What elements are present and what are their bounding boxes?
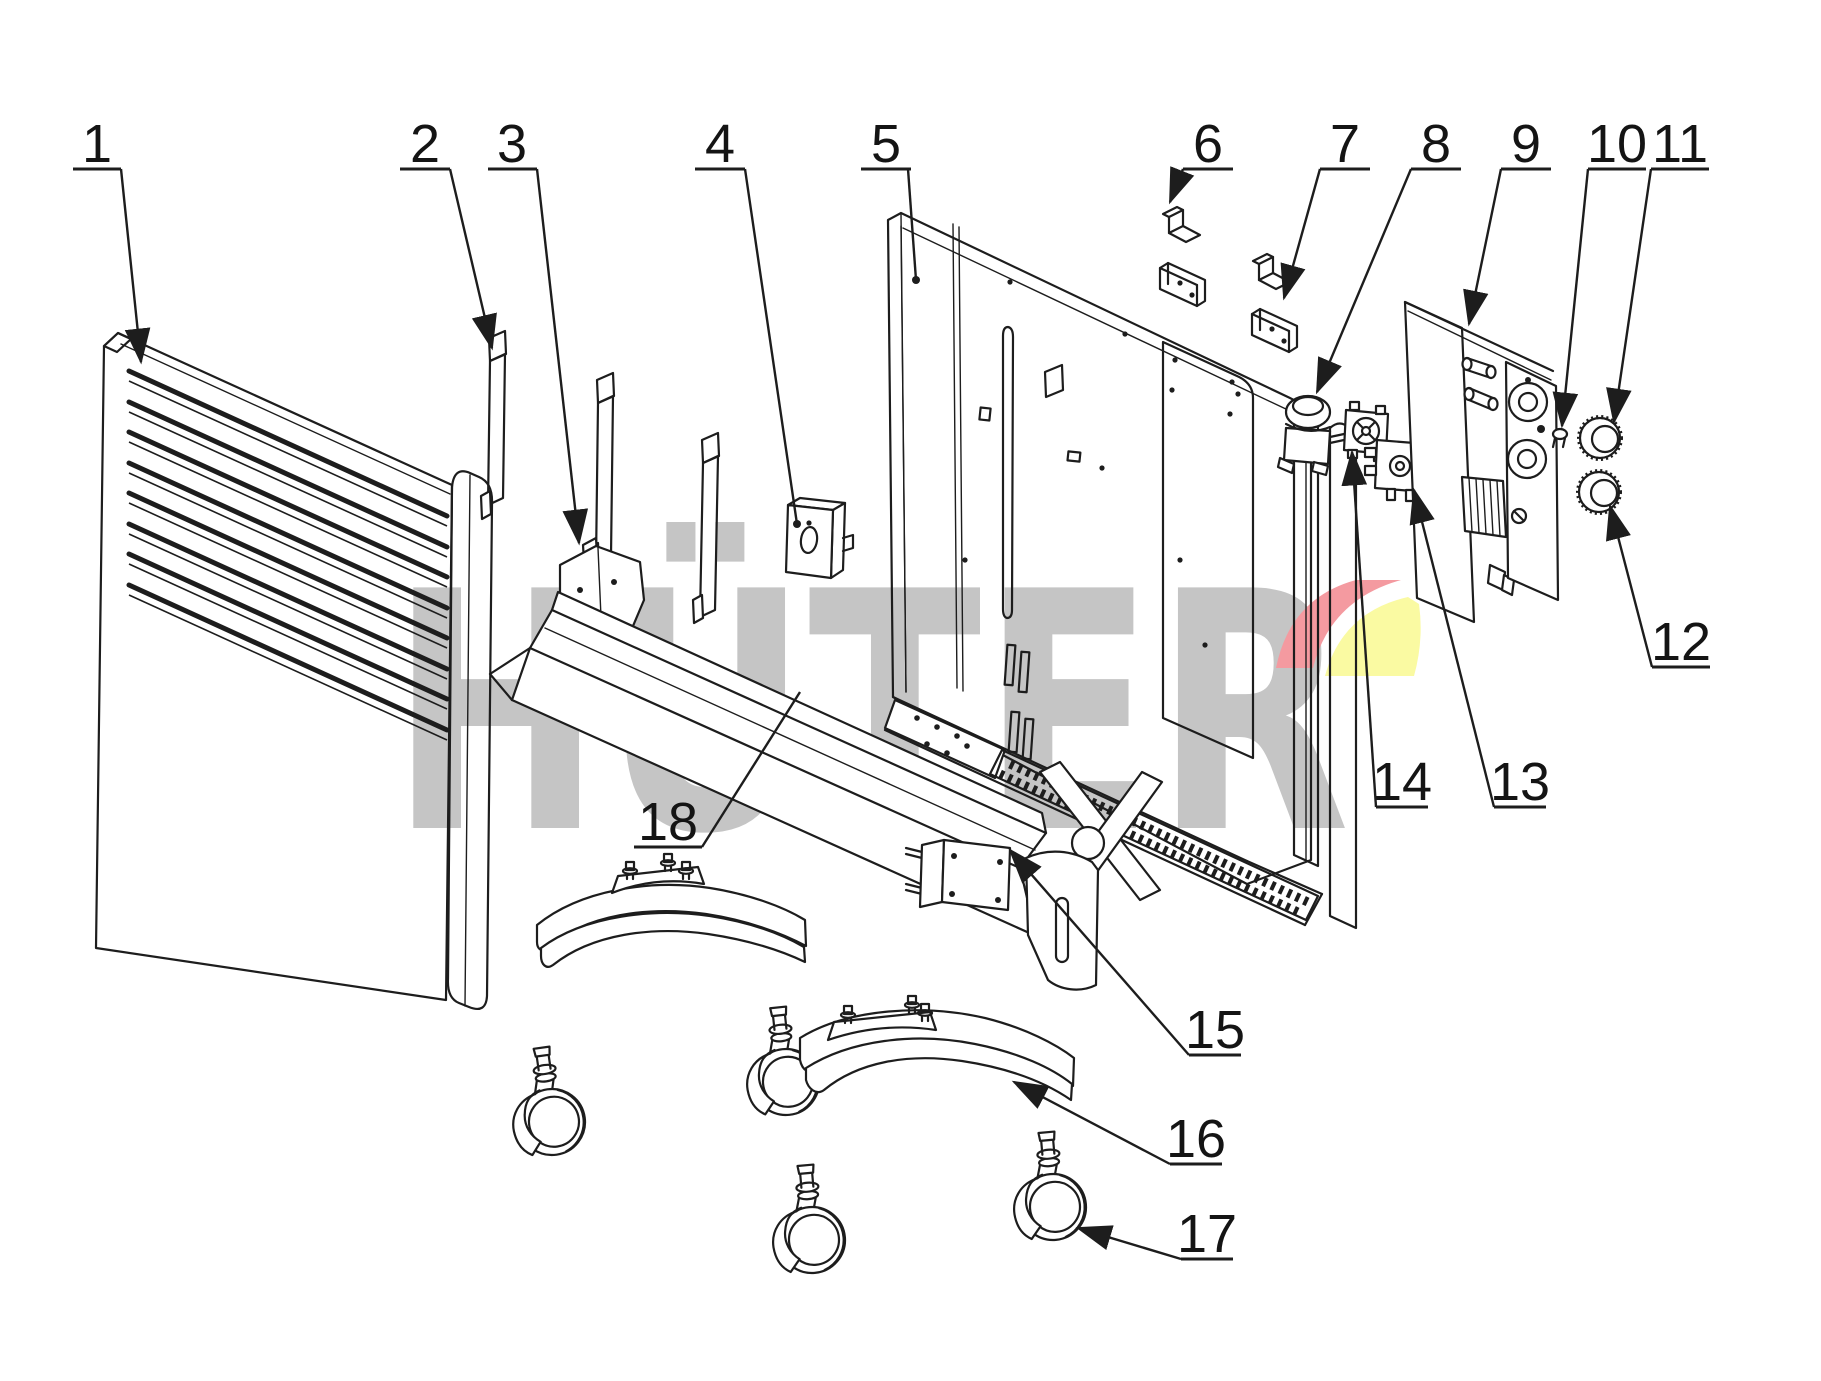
- part-number: 12: [1651, 612, 1711, 672]
- callout-1: 1: [73, 114, 141, 362]
- callout-17: 17: [1078, 1204, 1237, 1264]
- part-number: 17: [1177, 1204, 1237, 1264]
- callout-3: 3: [488, 114, 579, 543]
- callout-9: 9: [1469, 114, 1551, 324]
- part-foot-rear: [800, 996, 1074, 1100]
- part-number: 7: [1330, 114, 1360, 174]
- part-number: 6: [1193, 114, 1223, 174]
- part-control-bracket: [1405, 302, 1558, 622]
- part-knob-lower: [1578, 471, 1620, 513]
- exploded-diagram: HÜTER: [0, 0, 1821, 1381]
- part-number: 15: [1185, 1000, 1245, 1060]
- part-number: 11: [1652, 114, 1708, 174]
- part-wall-brackets-lower: [1252, 254, 1297, 352]
- part-number: 5: [871, 114, 901, 174]
- callout-4: 4: [695, 114, 801, 528]
- part-number: 18: [638, 792, 698, 852]
- callout-7: 7: [1284, 114, 1370, 298]
- callout-12: 12: [1610, 506, 1711, 672]
- callout-2: 2: [400, 114, 492, 348]
- part-number: 3: [497, 114, 527, 174]
- part-number: 9: [1511, 114, 1541, 174]
- part-motor-unit: [1278, 396, 1344, 475]
- part-wall-brackets-upper: [1160, 207, 1205, 306]
- part-number: 13: [1490, 752, 1550, 812]
- part-number: 10: [1587, 114, 1647, 174]
- callout-5: 5: [861, 114, 920, 284]
- part-number: 4: [705, 114, 735, 174]
- part-number: 14: [1372, 752, 1432, 812]
- part-number: 8: [1421, 114, 1451, 174]
- part-number: 2: [410, 114, 440, 174]
- part-number: 1: [82, 114, 112, 174]
- callout-6: 6: [1170, 114, 1233, 202]
- diagram-page: HÜTER: [0, 0, 1821, 1381]
- part-knob-upper: [1579, 417, 1621, 459]
- part-number: 16: [1166, 1109, 1226, 1169]
- callout-10: 10: [1562, 114, 1647, 426]
